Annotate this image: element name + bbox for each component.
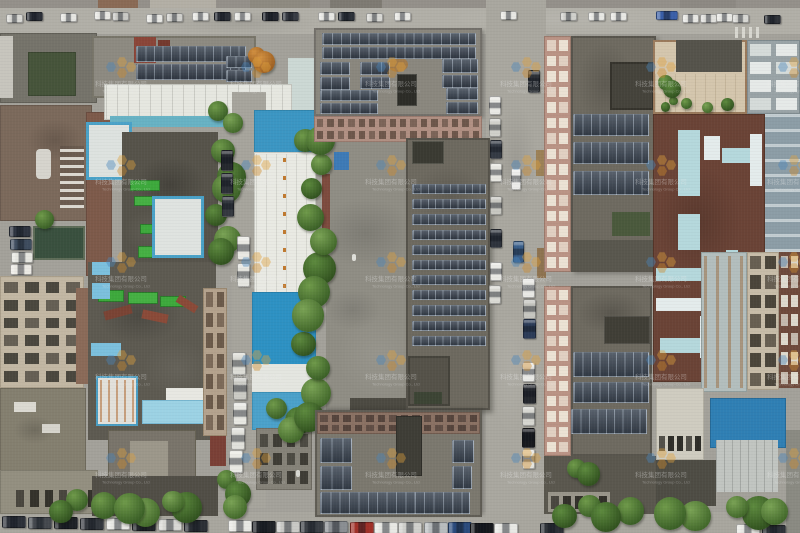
window-cell	[462, 119, 468, 127]
street-trees	[654, 497, 687, 530]
top-street-cars	[500, 11, 517, 20]
window-cell	[668, 436, 674, 451]
top-street-cars	[682, 14, 699, 23]
north-roof	[680, 0, 736, 8]
window-cell	[547, 71, 556, 82]
window-cell	[776, 80, 797, 92]
top-street-cars	[234, 12, 251, 21]
tree-cluster	[577, 462, 601, 486]
rust-patch	[388, 57, 408, 72]
bottom-street-cars	[300, 521, 324, 533]
metal-roof-ribs	[716, 440, 778, 492]
street-parked-cars	[522, 428, 535, 448]
solar-panel-row	[452, 466, 472, 489]
window-cell	[260, 453, 268, 466]
top-street-cars	[94, 11, 111, 20]
window-cell	[366, 415, 374, 422]
window-cell	[559, 56, 568, 67]
solar-panel-row	[412, 214, 486, 224]
window-cell	[781, 314, 788, 326]
street-trees	[591, 502, 621, 532]
street-van-dark	[528, 70, 540, 93]
window-cell	[458, 415, 466, 422]
window-cell	[547, 226, 556, 237]
skylight-cyan	[660, 338, 702, 353]
window-cell	[206, 313, 213, 328]
top-street-cars	[732, 14, 749, 23]
north-roof	[330, 0, 382, 8]
blue-awning	[92, 262, 110, 275]
stair-housing	[412, 141, 444, 164]
facade-windows	[547, 40, 568, 268]
window-cell	[765, 275, 776, 288]
solar-panel-row	[320, 438, 352, 463]
window-cell	[781, 333, 788, 345]
street-parked-cars	[490, 262, 502, 281]
window-cell	[781, 372, 788, 384]
solar-panel-row	[573, 142, 649, 164]
facade-windows	[781, 256, 798, 384]
window-cell	[4, 353, 18, 364]
window-cell	[765, 353, 776, 366]
bottom-street-cars	[28, 517, 52, 529]
window-cell	[781, 352, 788, 364]
window-cell	[217, 333, 224, 348]
window-cell	[46, 335, 60, 346]
window-cell	[559, 242, 568, 253]
top-street-cars	[700, 14, 717, 23]
apartment-windows	[4, 282, 80, 382]
top-street-cars	[560, 12, 577, 21]
solar-array	[320, 90, 378, 114]
street-trees	[552, 504, 577, 529]
facade-windows	[750, 256, 776, 386]
tree-line	[292, 299, 324, 331]
window-cell	[400, 119, 406, 127]
top-street-cars	[394, 12, 411, 21]
window-cell	[46, 318, 60, 329]
street-parked-cars	[490, 196, 502, 215]
solar-array	[320, 62, 350, 90]
window-cell	[217, 395, 224, 410]
window-cell	[25, 335, 39, 346]
solar-array	[320, 466, 352, 490]
window-cell	[547, 290, 556, 300]
solar-panel-row	[322, 47, 476, 59]
window-cell	[547, 40, 556, 51]
window-cell	[547, 180, 556, 191]
parked-cars	[233, 377, 247, 400]
tree-line	[301, 178, 322, 199]
street-parked-cars	[490, 229, 502, 248]
window-cell	[559, 118, 568, 129]
top-street-cars	[146, 14, 163, 23]
window-cell	[300, 453, 308, 466]
window-cell	[559, 305, 568, 315]
bottom-street-cars	[276, 521, 300, 533]
window-cell	[4, 371, 18, 382]
bottom-street-cars	[228, 520, 252, 532]
top-street-cars	[366, 13, 383, 22]
parked-cars	[232, 352, 246, 375]
window-cell	[791, 352, 798, 364]
metal-stripes	[765, 114, 800, 252]
window-cell	[559, 336, 568, 346]
window-cell	[781, 256, 788, 268]
window-cell	[791, 333, 798, 345]
top-street-cars	[26, 12, 43, 21]
window-cell	[338, 119, 344, 127]
solar-panel-row	[412, 275, 486, 285]
top-street-cars	[318, 12, 335, 21]
solar-panel-row	[412, 230, 486, 240]
street-parked-cars	[490, 140, 502, 159]
top-street-cars	[166, 13, 183, 22]
window-cell	[46, 282, 60, 293]
window-cell	[559, 320, 568, 330]
window-cell	[273, 471, 281, 484]
window-cell	[273, 453, 281, 466]
window-cell	[317, 131, 323, 139]
window-cell	[369, 119, 375, 127]
window-cell	[547, 149, 556, 160]
solar-panel-row	[412, 336, 486, 346]
solar-panel-row	[360, 62, 390, 75]
green-machine	[130, 180, 160, 191]
parked-cars	[231, 427, 245, 450]
solar-array	[452, 440, 474, 463]
window-cell	[750, 275, 761, 288]
street-trees	[114, 493, 145, 524]
window-cell	[750, 256, 761, 269]
window-cell	[30, 490, 38, 507]
rust-streaks	[100, 380, 134, 422]
window-cell	[677, 436, 683, 451]
top-street-cars	[282, 12, 299, 21]
top-street-cars	[588, 12, 605, 21]
solar-array	[573, 114, 649, 136]
solar-array	[446, 88, 478, 114]
window-cell	[750, 62, 771, 74]
window-cell	[206, 354, 213, 369]
solar-array	[322, 33, 476, 59]
solar-panel-row	[412, 321, 486, 331]
window-cell	[547, 211, 556, 222]
window-cell	[559, 102, 568, 113]
window-cell	[547, 56, 556, 67]
solar-panel-row	[320, 466, 352, 490]
window-cell	[447, 415, 455, 422]
bottom-street-cars	[324, 521, 348, 533]
facade-windows	[547, 290, 568, 452]
parked-cars	[221, 173, 233, 194]
window-cell	[431, 119, 437, 127]
window-cell	[559, 133, 568, 144]
skylight-cyan	[704, 136, 720, 160]
bottom-street-cars	[494, 523, 518, 533]
window-cell	[206, 292, 213, 307]
skylight-cyan	[678, 130, 700, 196]
street-trees	[726, 496, 748, 518]
window-cell	[559, 427, 568, 437]
tower-windows	[206, 292, 224, 430]
window-cell	[559, 164, 568, 175]
parked-cars	[222, 196, 234, 217]
top-street-cars	[338, 12, 355, 21]
white-blue-roof	[152, 196, 204, 258]
top-street-cars	[716, 13, 733, 22]
window-cell	[300, 471, 308, 484]
window-cell	[559, 226, 568, 237]
window-cell	[46, 300, 60, 311]
window-cell	[559, 40, 568, 51]
top-street-cars	[764, 15, 781, 24]
top-street-cars	[192, 12, 209, 21]
window-cell	[442, 119, 448, 127]
window-cell	[559, 211, 568, 222]
window-cell	[355, 425, 363, 432]
solar-array	[573, 171, 649, 195]
window-cell	[547, 102, 556, 113]
solar-array	[320, 492, 470, 514]
window-cell	[206, 333, 213, 348]
window-cell	[343, 425, 351, 432]
tree-row	[208, 238, 234, 264]
bottom-street-cars	[448, 522, 472, 533]
window-cell	[547, 164, 556, 175]
window-cell	[320, 415, 328, 422]
window-cell	[366, 425, 374, 432]
window-cell	[327, 131, 333, 139]
street-parked-cars	[522, 362, 535, 382]
rooftop-tank	[36, 149, 51, 179]
window-cell	[559, 87, 568, 98]
street-parked-cars	[490, 163, 502, 182]
solar-array	[226, 56, 252, 82]
alley-parked-cars	[9, 226, 31, 237]
street-parked-cars	[489, 96, 501, 115]
blue-awning	[91, 343, 121, 356]
alley-parked-cars	[10, 239, 32, 250]
window-cell	[765, 373, 776, 386]
street-parked-cars	[489, 285, 501, 304]
window-cell	[750, 353, 761, 366]
window-cell	[46, 353, 60, 364]
window-cell	[359, 131, 365, 139]
window-cell	[547, 381, 556, 391]
rust-streaks	[704, 256, 744, 388]
solar-array	[360, 62, 390, 89]
street-parked-cars	[523, 319, 536, 339]
window-cell	[421, 119, 427, 127]
skylight-cyan	[678, 214, 700, 250]
top-street-cars	[610, 12, 627, 21]
window-cell	[559, 381, 568, 391]
street-car-blue	[513, 241, 524, 263]
window-cell	[547, 336, 556, 346]
parked-cars	[229, 450, 243, 473]
window-cell	[791, 295, 798, 307]
window-cell	[260, 471, 268, 484]
metal-panels	[750, 44, 797, 110]
window-cell	[320, 425, 328, 432]
bottom-street-cars	[470, 523, 494, 533]
solar-panel-row	[412, 260, 486, 270]
solar-panel-row	[573, 382, 649, 403]
window-cell	[750, 80, 771, 92]
solar-panel-row	[412, 245, 486, 255]
window-cell	[338, 131, 344, 139]
solar-panel-row	[571, 409, 647, 434]
window-cell	[206, 395, 213, 410]
orange-tree	[253, 51, 275, 73]
window-cell	[659, 436, 665, 451]
bottom-street-cars	[350, 522, 374, 533]
window-cell	[390, 119, 396, 127]
street-parked-cars	[489, 118, 501, 137]
window-cell	[765, 314, 776, 327]
white-roof-edge	[0, 36, 13, 98]
window-cell	[547, 195, 556, 206]
window-cell	[217, 354, 224, 369]
window-cell	[547, 257, 556, 268]
window-cell	[559, 396, 568, 406]
light-blue-roof	[142, 400, 208, 424]
window-cell	[695, 436, 701, 451]
tree-line	[291, 332, 316, 357]
green-machine	[128, 292, 158, 304]
window-cell	[206, 374, 213, 389]
roof-garden	[28, 52, 76, 96]
bottom-street-cars	[374, 522, 398, 533]
solar-panel-row	[573, 352, 649, 377]
window-cell	[547, 320, 556, 330]
terrace-dark-section	[676, 40, 742, 72]
window-cell	[4, 318, 18, 329]
window-cell	[217, 415, 224, 430]
bottom-street-cars	[80, 518, 104, 530]
window-cell	[378, 415, 386, 422]
window-cell	[260, 434, 268, 447]
window-cell	[25, 353, 39, 364]
blue-awning	[92, 283, 110, 299]
window-cell	[547, 118, 556, 129]
window-cell	[791, 314, 798, 326]
bottom-street-cars	[2, 516, 26, 528]
stair-housing	[604, 316, 650, 344]
window-cell	[765, 295, 776, 308]
window-cell	[547, 442, 556, 452]
solar-panel-row	[320, 90, 378, 101]
solar-panel-row	[320, 77, 350, 90]
solar-panel-row	[226, 70, 252, 82]
window-cell	[473, 119, 479, 127]
solar-array	[442, 59, 478, 88]
solar-panel-row	[412, 184, 486, 194]
solar-array	[320, 438, 352, 463]
window-cell	[547, 351, 556, 361]
window-cell	[4, 300, 18, 311]
solar-array	[452, 466, 472, 489]
top-street-cars	[6, 14, 23, 23]
solar-panel-row	[320, 103, 378, 114]
roof-shaft-dark	[396, 416, 422, 476]
aerial-photo: Aerial top-down drone photo of an indust…	[0, 0, 800, 533]
roof-vent	[42, 424, 60, 433]
terrace-plants	[669, 97, 678, 106]
window-cell	[559, 351, 568, 361]
grey-edge-building	[786, 430, 800, 533]
window-cell	[686, 436, 692, 451]
ridge-dots	[283, 158, 286, 288]
penthouse-green-roof	[414, 392, 442, 404]
solar-panel-row	[446, 88, 478, 100]
window-cell	[547, 242, 556, 253]
window-cell	[750, 314, 761, 327]
solar-panel-row	[412, 199, 486, 209]
courtyard-pavement	[326, 126, 414, 432]
bottom-street-cars	[424, 522, 448, 533]
solar-panel-row	[442, 75, 478, 89]
window-cell	[379, 131, 385, 139]
bottom-street-cars	[252, 521, 276, 533]
window-cell	[217, 374, 224, 389]
window-cell	[776, 44, 797, 56]
top-street-cars	[262, 12, 279, 21]
window-cell	[25, 371, 39, 382]
window-cell	[776, 62, 797, 74]
skylight-cyan	[656, 298, 702, 311]
skylight-cyan	[750, 134, 762, 186]
window-cell	[791, 275, 798, 287]
solar-panel-row	[322, 33, 476, 45]
street-van	[511, 168, 521, 190]
courtyard-palms	[266, 398, 287, 419]
street-parked-cars	[523, 299, 536, 319]
roof-shaft	[397, 74, 417, 106]
window-cell	[750, 295, 761, 308]
window-cell	[317, 119, 323, 127]
window-cell	[25, 300, 39, 311]
window-cell	[750, 44, 771, 56]
window-cell	[287, 453, 295, 466]
window-cell	[217, 292, 224, 307]
pedestrian	[296, 470, 300, 477]
window-cell	[25, 282, 39, 293]
parked-cars	[221, 150, 233, 171]
top-street-cars	[214, 12, 231, 21]
window-cell	[776, 98, 797, 110]
pedestrian	[352, 254, 356, 261]
roof-vent	[14, 402, 36, 412]
window-cell	[435, 425, 443, 432]
parked-cars	[237, 236, 250, 260]
tree-cluster	[663, 80, 681, 98]
top-street-cars	[112, 12, 129, 21]
green-water-tank	[33, 226, 85, 260]
street-trees	[162, 491, 183, 512]
window-cell	[16, 490, 24, 507]
red-stair-tower	[210, 436, 226, 466]
top-street-cars	[656, 11, 678, 20]
solar-array-rows	[412, 184, 486, 346]
window-cell	[547, 133, 556, 144]
window-cell	[470, 415, 478, 422]
terrace-plants	[661, 102, 671, 112]
window-cell	[559, 71, 568, 82]
window-cell	[4, 282, 18, 293]
window-cell	[765, 256, 776, 269]
